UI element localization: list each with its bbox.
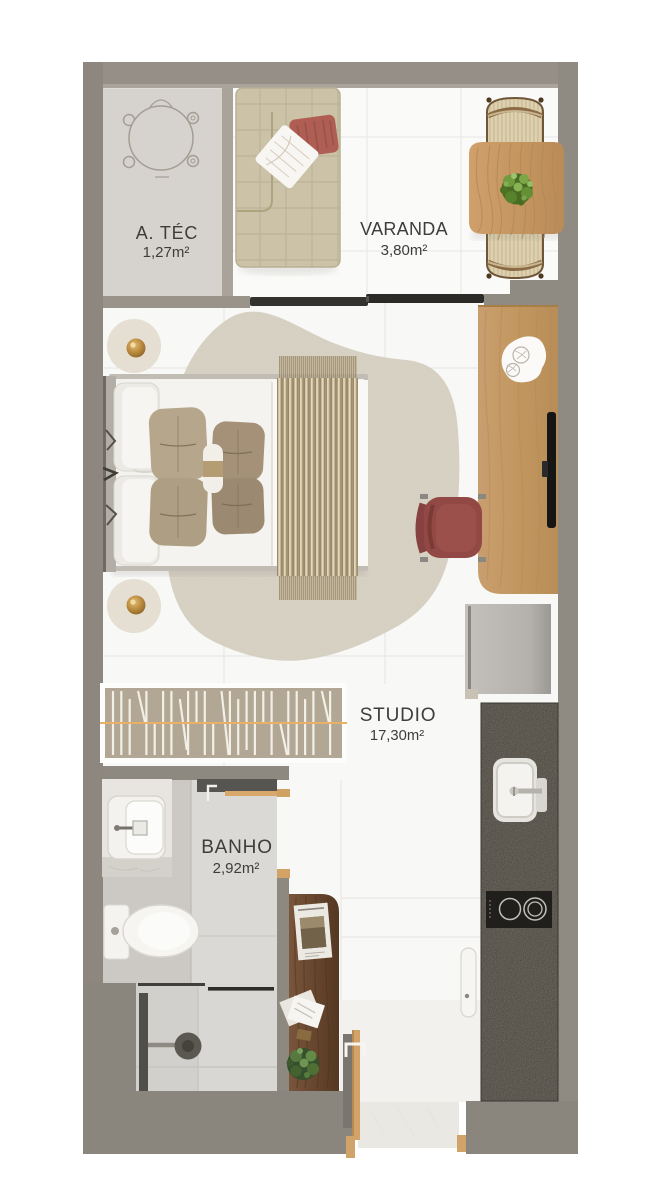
svg-text:3,80m²: 3,80m² [381,242,428,259]
svg-text:BANHO: BANHO [201,837,273,858]
svg-text:VARANDA: VARANDA [360,219,448,239]
svg-text:1,27m²: 1,27m² [143,244,190,261]
svg-text:STUDIO: STUDIO [360,705,437,726]
svg-text:17,30m²: 17,30m² [370,728,424,744]
svg-text:2,92m²: 2,92m² [213,860,260,877]
svg-text:A. TÉC: A. TÉC [136,223,198,243]
